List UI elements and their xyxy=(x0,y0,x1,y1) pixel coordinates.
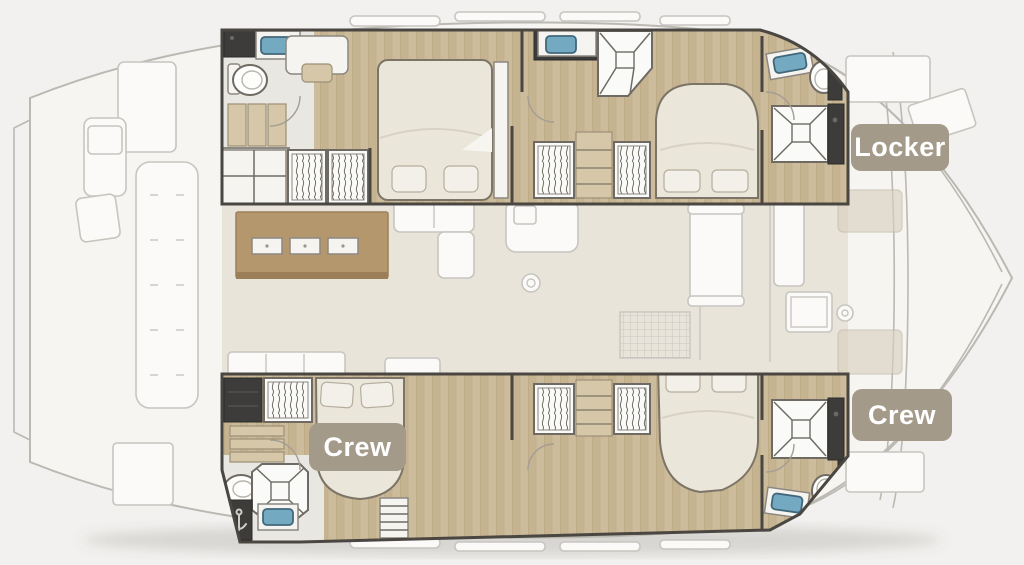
wardrobe-6 xyxy=(534,384,574,434)
crew-locker-dark xyxy=(224,378,262,422)
helm-seat xyxy=(75,193,121,242)
wardrobe-7 xyxy=(614,384,650,434)
wardrobe-2 xyxy=(328,150,368,204)
sink-4 xyxy=(258,504,298,530)
aft-cabinet-bottom xyxy=(846,452,924,492)
bed-side-shelf xyxy=(494,62,508,198)
companionway-steps-aft xyxy=(576,380,612,436)
storage-cubbies xyxy=(222,150,286,204)
aft-cushion-bottom xyxy=(838,330,902,374)
companionway-steps-fwd xyxy=(576,132,612,198)
hull-stairs xyxy=(380,498,408,538)
label-crew-port: Crew xyxy=(309,423,406,471)
mast-fitting xyxy=(522,274,540,292)
cockpit-sofa xyxy=(690,208,742,302)
winch xyxy=(837,305,853,321)
step-shelves-stbd xyxy=(230,426,284,462)
floor-plan-graphic xyxy=(0,0,1024,565)
swim-platform xyxy=(14,120,30,440)
cockpit-bench xyxy=(774,198,804,286)
wardrobe-3 xyxy=(534,142,574,198)
helm-screen xyxy=(88,126,122,154)
yacht-floor-plan: Locker Crew Crew xyxy=(0,0,1024,565)
wardrobe-4 xyxy=(614,142,650,198)
toilet-1 xyxy=(228,64,267,95)
cockpit-table xyxy=(786,292,832,332)
wardrobe-1 xyxy=(288,150,326,204)
double-bed-1 xyxy=(378,60,492,200)
shower-3 xyxy=(772,106,828,162)
bow-locker-panel xyxy=(113,443,173,505)
shower-5 xyxy=(772,400,828,458)
sun-lounger xyxy=(136,162,198,408)
label-locker: Locker xyxy=(851,124,949,171)
galley-island xyxy=(236,212,388,279)
port-hull-cabins xyxy=(214,24,848,204)
aft-cabinet-top xyxy=(846,56,930,102)
cockpit-grate xyxy=(620,312,690,358)
double-bed-4 xyxy=(658,366,758,492)
double-bed-2 xyxy=(656,84,758,198)
sink-5 xyxy=(764,487,809,519)
shower-unit-dark xyxy=(224,31,260,57)
label-crew-starboard: Crew xyxy=(852,389,952,441)
wardrobe-5 xyxy=(264,378,312,422)
